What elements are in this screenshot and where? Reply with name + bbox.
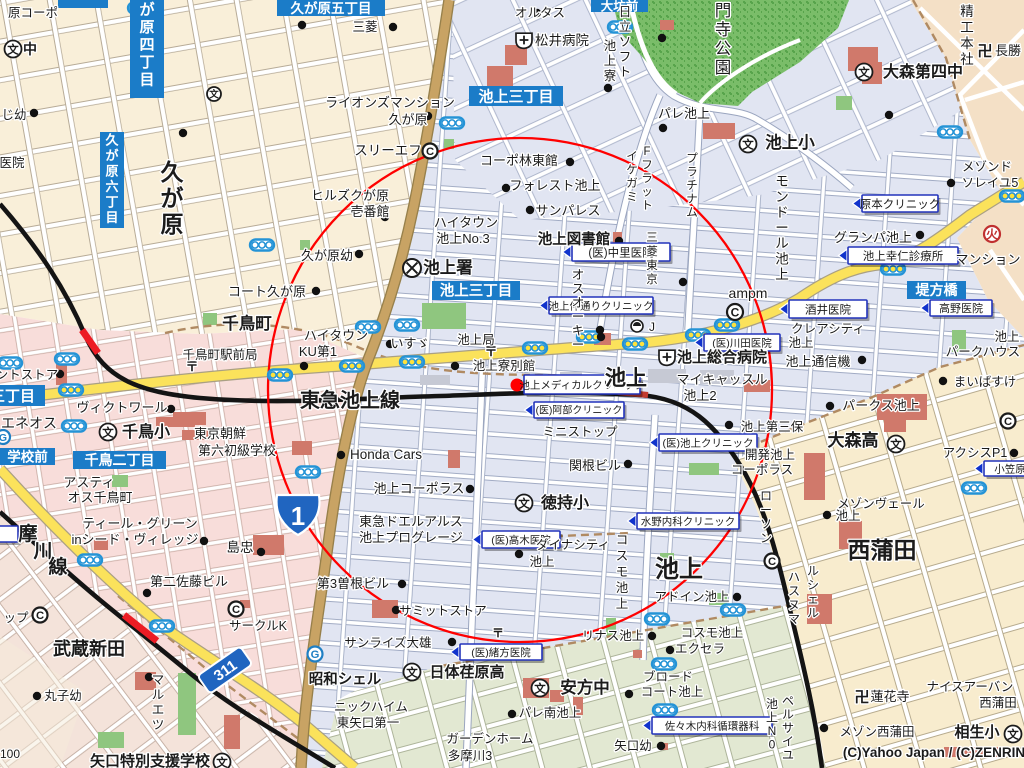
svg-text:火: 火 — [986, 227, 999, 241]
svg-text:エクセラ: エクセラ — [675, 642, 725, 656]
svg-text:池上三丁目: 池上三丁目 — [440, 282, 513, 300]
svg-text:池上総合病院: 池上総合病院 — [677, 348, 767, 366]
svg-text:第3曽根ビル: 第3曽根ビル — [317, 576, 389, 591]
svg-text:東急池上線: 東急池上線 — [300, 388, 400, 412]
svg-text:C: C — [232, 604, 240, 616]
svg-text:蓮花寺: 蓮花寺 — [870, 689, 909, 704]
svg-text:J: J — [649, 320, 655, 334]
svg-text:線: 線 — [48, 555, 67, 578]
svg-text:池上三丁目: 池上三丁目 — [478, 87, 553, 105]
svg-text:久が原五丁目: 久が原五丁目 — [291, 0, 372, 16]
svg-text:昭和シェル: 昭和シェル — [309, 671, 382, 688]
svg-text:相生小: 相生小 — [954, 723, 999, 741]
svg-text:グランパ池上: グランパ池上 — [834, 230, 912, 245]
svg-text:久が原: 久が原 — [161, 159, 184, 237]
svg-text:池上幸仁診療所: 池上幸仁診療所 — [863, 249, 944, 263]
svg-text:小笠原: 小笠原 — [994, 462, 1024, 475]
svg-text:池上No.3: 池上No.3 — [436, 231, 489, 246]
svg-text:ガーデンホーム: ガーデンホーム — [446, 731, 533, 746]
svg-text:学校前: 学校前 — [7, 448, 48, 464]
svg-text:(医)阿部クリニック: (医)阿部クリニック — [536, 404, 623, 417]
svg-text:卍: 卍 — [977, 43, 992, 60]
svg-text:エネオス: エネオス — [1, 415, 57, 431]
svg-text:ルシェル: ルシェル — [807, 564, 819, 620]
svg-text:コート久が原: コート久が原 — [228, 284, 306, 299]
svg-text:大森第四中: 大森第四中 — [883, 62, 963, 81]
svg-text:オルタス: オルタス — [515, 6, 565, 20]
svg-text:ソレイユ5: ソレイユ5 — [962, 176, 1019, 190]
svg-text:池上2: 池上2 — [683, 388, 716, 403]
svg-text:池上プログレージ: 池上プログレージ — [359, 530, 463, 545]
svg-text:西蒲田: 西蒲田 — [848, 537, 917, 563]
svg-text:精工本社: 精工本社 — [960, 4, 974, 67]
svg-text:中: 中 — [23, 41, 37, 57]
svg-text:ニックハイム: ニックハイム — [334, 700, 408, 714]
svg-text:水野内科クリニック: 水野内科クリニック — [641, 515, 736, 528]
svg-text:ハイタウン: ハイタウン — [434, 215, 498, 230]
svg-text:ミニストップ: ミニストップ — [542, 425, 618, 439]
svg-text:メゾンド: メゾンド — [962, 160, 1012, 174]
svg-text:久が原六丁目: 久が原六丁目 — [105, 132, 119, 225]
svg-text:千鳥二丁目: 千鳥二丁目 — [85, 452, 155, 468]
svg-text:大森高: 大森高 — [828, 430, 879, 450]
svg-text:ティール・グリーン: ティール・グリーン — [82, 516, 198, 531]
svg-text:inシード・ヴィレッジ: inシード・ヴィレッジ — [71, 532, 198, 547]
svg-text:日体荏原高: 日体荏原高 — [429, 663, 504, 681]
svg-text:文: 文 — [534, 681, 546, 695]
svg-text:ローソン: ローソン — [760, 489, 772, 545]
svg-text:松井病院: 松井病院 — [535, 33, 589, 48]
svg-text:オス千鳥町: オス千鳥町 — [67, 490, 132, 505]
svg-text:プラチナム: プラチナム — [686, 152, 698, 219]
svg-text:千鳥町: 千鳥町 — [222, 313, 272, 333]
svg-text:マイキャッスル: マイキャッスル — [676, 372, 767, 387]
svg-text:アドイン池上: アドイン池上 — [654, 590, 729, 604]
svg-text:メゾン西蒲田: メゾン西蒲田 — [839, 725, 914, 739]
svg-text:高野医院: 高野医院 — [939, 301, 983, 315]
svg-text:サミットストア: サミットストア — [399, 604, 487, 618]
svg-text:池上: 池上 — [529, 555, 554, 569]
svg-text:コスモ池上: コスモ池上 — [681, 626, 744, 640]
svg-text:長勝: 長勝 — [995, 43, 1021, 58]
svg-text:ペルサイユ: ペルサイユ — [782, 694, 794, 762]
svg-text:C: C — [36, 610, 44, 622]
svg-text:コーポラス: コーポラス — [731, 463, 793, 477]
svg-text:池上小: 池上小 — [765, 132, 815, 152]
svg-text:いすゞ: いすゞ — [390, 336, 429, 351]
svg-text:1: 1 — [291, 501, 305, 531]
svg-text:丸子幼: 丸子幼 — [44, 689, 82, 703]
svg-text:徳持小: 徳持小 — [540, 493, 589, 512]
svg-text:門寺公園: 門寺公園 — [715, 2, 732, 77]
svg-text:多摩川3: 多摩川3 — [448, 748, 493, 763]
svg-text:久が原: 久が原 — [388, 112, 427, 127]
svg-text:池上: 池上 — [994, 330, 1019, 344]
svg-text:ヒルズクが原: ヒルズクが原 — [311, 188, 389, 203]
svg-text:酒井医院: 酒井医院 — [805, 302, 851, 316]
svg-text:クレアシティ: クレアシティ — [791, 322, 865, 336]
svg-text:パレ南池上: パレ南池上 — [519, 705, 582, 720]
svg-text:(医)池上クリニック: (医)池上クリニック — [663, 436, 754, 449]
svg-text:第六初級学校: 第六初級学校 — [198, 443, 276, 458]
svg-text:東京朝鮮: 東京朝鮮 — [194, 426, 246, 441]
svg-text:文: 文 — [7, 42, 19, 56]
svg-text:東急ドエルアルス: 東急ドエルアルス — [359, 514, 463, 529]
svg-text:パレ池上: パレ池上 — [658, 106, 710, 121]
svg-text:堤方橋: 堤方橋 — [916, 282, 959, 298]
svg-text:ダイナシティ: ダイナシティ — [536, 537, 610, 552]
svg-text:医院: 医院 — [0, 156, 25, 170]
svg-text:C: C — [768, 556, 776, 568]
svg-text:KU第1: KU第1 — [299, 344, 337, 359]
svg-text:池上: 池上 — [788, 336, 813, 350]
svg-text:池上仲通りクリニック: 池上仲通りクリニック — [549, 299, 654, 312]
svg-text:原本クリニック: 原本クリニック — [860, 197, 941, 211]
svg-text:パークス池上: パークス池上 — [842, 398, 920, 413]
svg-text:三菱: 三菱 — [352, 20, 377, 34]
svg-text:千鳥町駅前局: 千鳥町駅前局 — [182, 347, 257, 362]
svg-text:サークルK: サークルK — [229, 619, 288, 633]
svg-text:池上第三保: 池上第三保 — [741, 420, 804, 434]
svg-text:サンパレス: サンパレス — [535, 203, 600, 218]
svg-text:文: 文 — [406, 665, 418, 679]
svg-text:マンション: マンション — [955, 252, 1020, 267]
svg-text:(医)川田医院: (医)川田医院 — [712, 336, 772, 349]
svg-text:文: 文 — [858, 65, 870, 79]
svg-text:池上寮: 池上寮 — [604, 39, 617, 83]
svg-text:池上コーポラス: 池上コーポラス — [374, 481, 465, 496]
svg-text:ップ: ップ — [3, 611, 29, 625]
svg-text:池上寮別館: 池上寮別館 — [473, 358, 536, 373]
svg-text:ハイタウン: ハイタウン — [304, 328, 368, 343]
svg-text:Honda Cars: Honda Cars — [350, 447, 422, 462]
svg-text:ヴィクトワール: ヴィクトワール — [76, 400, 167, 415]
svg-text:矢口幼: 矢口幼 — [614, 739, 652, 753]
svg-text:東矢口第一: 東矢口第一 — [337, 716, 400, 730]
svg-text:文: 文 — [208, 89, 219, 101]
svg-text:が原四丁目: が原四丁目 — [139, 0, 155, 88]
svg-text:池上: 池上 — [835, 509, 860, 523]
svg-text:オスオーキー: オスオーキー — [572, 268, 585, 352]
svg-text:日立ソフト: 日立ソフト — [619, 5, 632, 79]
svg-text:リナス池上: リナス池上 — [582, 629, 645, 643]
svg-text:ナイスアーバン: ナイスアーバン — [927, 680, 1014, 694]
svg-text:池上局: 池上局 — [457, 333, 495, 347]
svg-text:アクシスP1: アクシスP1 — [943, 446, 1008, 460]
svg-text:文: 文 — [216, 755, 228, 768]
svg-text:C: C — [426, 146, 434, 158]
svg-text:池上: 池上 — [605, 367, 647, 390]
svg-text:池上図書館: 池上図書館 — [538, 230, 611, 248]
svg-text:壱番館: 壱番館 — [350, 204, 389, 219]
svg-text:関根ビル: 関根ビル — [569, 458, 621, 473]
svg-text:C: C — [1004, 416, 1012, 428]
svg-text:文: 文 — [890, 437, 902, 451]
svg-text:パークハウス: パークハウス — [946, 345, 1020, 359]
svg-text:ampm: ampm — [729, 285, 768, 301]
svg-text:三丁目: 三丁目 — [0, 388, 35, 405]
svg-text:開発池上: 開発池上 — [745, 448, 795, 462]
svg-text:(医)緒方医院: (医)緒方医院 — [471, 646, 531, 659]
svg-text:G: G — [311, 649, 320, 661]
svg-text:ハスヌマ: ハスヌマ — [788, 570, 800, 626]
svg-text:G: G — [0, 432, 7, 444]
svg-text:原コーポ: 原コーポ — [8, 6, 58, 20]
svg-text:池上: 池上 — [655, 556, 703, 583]
svg-text:マルエツ: マルエツ — [152, 673, 165, 732]
svg-text:サンライズ大雄: サンライズ大雄 — [344, 635, 431, 650]
svg-text:島忠: 島忠 — [227, 540, 254, 555]
svg-text:ライオンズマンション: ライオンズマンション — [325, 95, 455, 110]
svg-text:佐々木内科循環器科: 佐々木内科循環器科 — [665, 719, 760, 732]
svg-text:卍: 卍 — [854, 689, 869, 706]
svg-text:100: 100 — [0, 747, 20, 761]
svg-text:(C)Yahoo Japan / (C)ZENRIN: (C)Yahoo Japan / (C)ZENRIN — [843, 745, 1024, 760]
svg-text:C: C — [731, 305, 740, 319]
svg-text:スリーエフ: スリーエフ — [354, 143, 422, 158]
svg-text:文: 文 — [1007, 727, 1019, 741]
svg-text:まいばすけ: まいばすけ — [954, 375, 1017, 389]
svg-text:ブロード: ブロード — [643, 669, 693, 684]
svg-text:矢口特別支援学校: 矢口特別支援学校 — [90, 752, 211, 768]
svg-text:アスティ: アスティ — [63, 475, 114, 490]
svg-text:文: 文 — [102, 425, 114, 439]
svg-text:コスモ池上: コスモ池上 — [616, 533, 629, 611]
svg-text:第二佐藤ビル: 第二佐藤ビル — [150, 574, 228, 589]
svg-text:じ幼: じ幼 — [1, 108, 26, 122]
svg-text:文: 文 — [518, 496, 530, 510]
svg-text:千鳥小: 千鳥小 — [122, 422, 170, 441]
svg-text:モンドール池上: モンドール池上 — [775, 174, 789, 282]
svg-text:西蒲田: 西蒲田 — [979, 696, 1017, 710]
svg-text:安方中: 安方中 — [560, 677, 610, 697]
svg-text:武蔵新田: 武蔵新田 — [53, 638, 125, 659]
svg-text:コート池上: コート池上 — [641, 685, 704, 699]
svg-text:〒: 〒 — [492, 626, 504, 640]
svg-text:フォレスト池上: フォレスト池上 — [509, 178, 600, 193]
svg-text:池上通信機: 池上通信機 — [785, 354, 850, 369]
svg-text:久が原幼: 久が原幼 — [301, 248, 353, 263]
svg-text:コーポ林東館: コーポ林東館 — [480, 153, 558, 168]
svg-text:イケガミ: イケガミ — [626, 151, 638, 204]
svg-text:池上署: 池上署 — [423, 257, 473, 277]
svg-text:文: 文 — [742, 137, 754, 151]
svg-text:ントストア: ントストア — [0, 368, 58, 382]
